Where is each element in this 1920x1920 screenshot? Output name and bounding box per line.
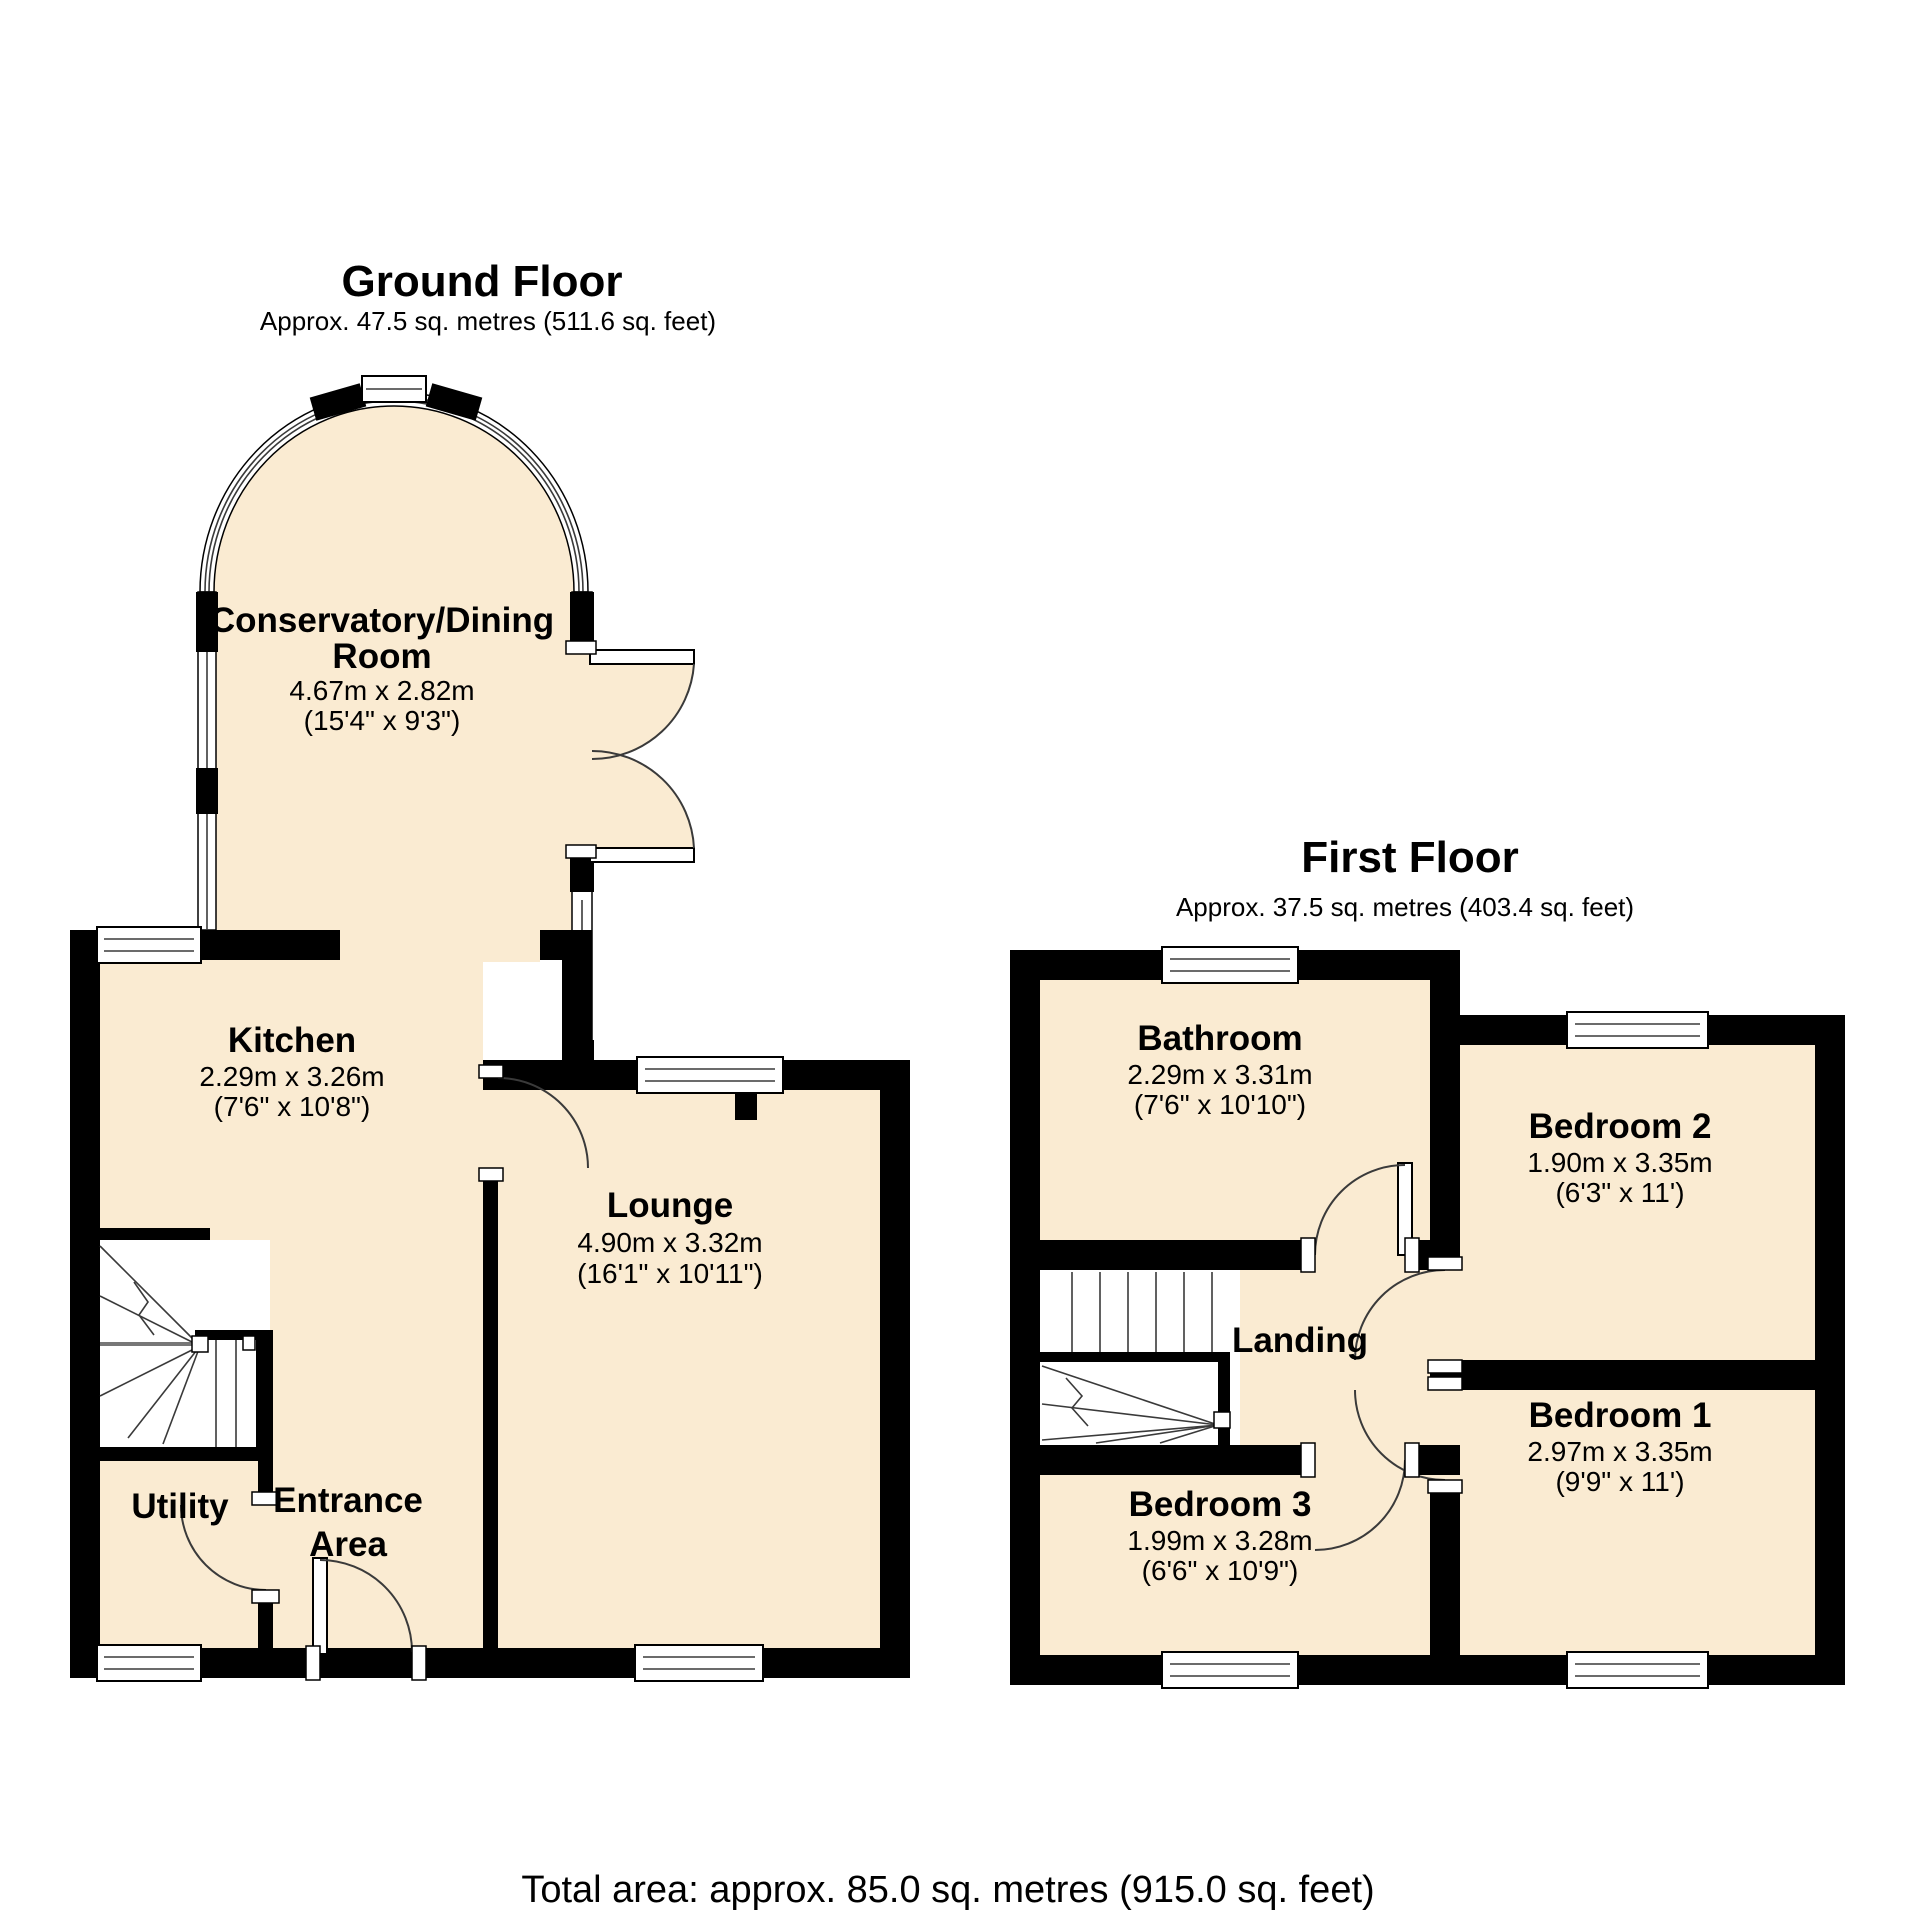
door-jamb [1428, 1360, 1462, 1373]
room-fill-lounge-door-gap [483, 1078, 498, 1168]
total-area-text: Total area: approx. 85.0 sq. metres (915… [521, 1869, 1374, 1911]
room-fill-lounge [498, 1090, 880, 1650]
ground-floor-subtitle: Approx. 47.5 sq. metres (511.6 sq. feet) [260, 306, 716, 336]
label-landing: Landing [1232, 1321, 1368, 1360]
door-jamb [566, 845, 596, 858]
label-lounge-dims-m: 4.90m x 3.32m [577, 1227, 762, 1258]
ground-stairs [100, 1240, 273, 1447]
wall-stub [540, 930, 592, 960]
wall-bedroom2-bottom [1430, 1360, 1845, 1390]
first-floor-subtitle: Approx. 37.5 sq. metres (403.4 sq. feet) [1176, 892, 1634, 922]
door-jamb [1405, 1238, 1419, 1272]
label-entrance-line1: Entrance [273, 1481, 423, 1520]
first-floor-title: First Floor [1301, 833, 1519, 882]
door-jamb [252, 1590, 279, 1603]
door-jamb [566, 641, 596, 654]
wall-landing-right [1430, 1045, 1460, 1270]
label-bedroom3-dims-ft: (6'6" x 10'9") [1142, 1555, 1299, 1586]
room-fill-bedroom3-door-gap [1315, 1445, 1405, 1475]
label-bedroom3: Bedroom 3 [1129, 1485, 1312, 1524]
window-kitchen-top [97, 927, 201, 963]
first-stairs [1040, 1270, 1240, 1445]
wall-stub [562, 960, 592, 1060]
wall-right [880, 1060, 910, 1678]
label-bathroom-dims-ft: (7'6" x 10'10") [1134, 1089, 1306, 1120]
window-bedroom1-bottom [1567, 1652, 1708, 1688]
window-lounge-top [637, 1057, 783, 1093]
window-bedroom2-top [1567, 1012, 1708, 1048]
label-bedroom1-dims-m: 2.97m x 3.35m [1527, 1436, 1712, 1467]
stair-edge-bar [1040, 1352, 1225, 1362]
label-utility: Utility [131, 1487, 229, 1526]
label-entrance-line2: Area [309, 1525, 387, 1564]
wall-kitchen-lounge [483, 1168, 498, 1648]
label-conservatory-dims-m: 4.67m x 2.82m [289, 675, 474, 706]
label-conservatory-line2: Room [332, 637, 431, 676]
wall [196, 768, 218, 814]
window-lounge-bottom [635, 1645, 763, 1681]
wall-landing-right [1430, 1480, 1460, 1685]
ground-floor-plan: Ground Floor Approx. 47.5 sq. metres (51… [70, 257, 910, 1681]
room-fill-utility-door-gap [258, 1505, 273, 1590]
label-bedroom2: Bedroom 2 [1529, 1107, 1712, 1146]
door-jamb [1428, 1257, 1462, 1270]
window-utility-bottom [97, 1645, 201, 1681]
label-conservatory-dims-ft: (15'4" x 9'3") [304, 705, 461, 736]
door-jamb [1428, 1480, 1462, 1493]
window-bedroom3-bottom [1162, 1652, 1298, 1688]
floorplan-page: Ground Floor Approx. 47.5 sq. metres (51… [0, 0, 1920, 1920]
label-bathroom: Bathroom [1137, 1019, 1302, 1058]
wall-utility-top [100, 1447, 258, 1461]
door-jamb [412, 1646, 426, 1680]
label-conservatory-line1: Conservatory/Dining [210, 601, 554, 640]
label-bedroom1: Bedroom 1 [1529, 1396, 1712, 1435]
stair-newel-cap [1214, 1412, 1230, 1428]
floorplan-drawing: Ground Floor Approx. 47.5 sq. metres (51… [0, 0, 1920, 1920]
door-jamb [1301, 1443, 1315, 1477]
label-lounge: Lounge [607, 1186, 733, 1225]
wall-left [70, 930, 100, 1678]
label-kitchen-dims-m: 2.29m x 3.26m [199, 1061, 384, 1092]
window-bathroom-top [1162, 947, 1298, 983]
ground-floor-title: Ground Floor [341, 257, 622, 306]
label-bedroom2-dims-m: 1.90m x 3.35m [1527, 1147, 1712, 1178]
label-bathroom-dims-m: 2.29m x 3.31m [1127, 1059, 1312, 1090]
stair-edge-bar [1218, 1352, 1230, 1445]
label-bedroom2-dims-ft: (6'3" x 11') [1555, 1177, 1684, 1208]
wall-bathroom-bottom [1040, 1240, 1315, 1270]
first-floor-plan: First Floor Approx. 37.5 sq. metres (403… [1010, 833, 1845, 1688]
label-kitchen: Kitchen [228, 1021, 356, 1060]
door-leaf-front [313, 1558, 327, 1654]
door-jamb [1405, 1443, 1419, 1477]
stair-newel-cap [192, 1336, 208, 1352]
label-lounge-dims-ft: (16'1" x 10'11") [577, 1258, 763, 1289]
french-door-opening [569, 654, 595, 846]
door-leaf [590, 650, 694, 664]
stair-edge-bar [256, 1330, 273, 1447]
door-jamb [1301, 1238, 1315, 1272]
room-fill-french-door-upper [592, 657, 694, 759]
door-jamb [1428, 1377, 1462, 1390]
room-fill-bathroom-door-gap [1315, 1240, 1405, 1270]
label-bedroom1-dims-ft: (9'9" x 11') [1555, 1466, 1684, 1497]
stair-newel-cap [243, 1336, 255, 1350]
wall-right [1815, 1015, 1845, 1685]
room-fill-french-door-lower [592, 751, 694, 853]
wall-stair-stub [100, 1228, 210, 1240]
wall-bedroom3-top [1040, 1445, 1315, 1475]
label-bedroom3-dims-m: 1.99m x 3.28m [1127, 1525, 1312, 1556]
wall-bottom [1010, 1655, 1845, 1685]
door-jamb [479, 1168, 503, 1181]
door-jamb [479, 1065, 503, 1078]
room-fill-conservatory-opening [340, 928, 540, 962]
door-leaf [590, 848, 694, 862]
door-jamb [306, 1646, 320, 1680]
room-fill-bedroom2-door-gap [1430, 1270, 1460, 1360]
label-kitchen-dims-ft: (7'6" x 10'8") [214, 1091, 371, 1122]
wall-left [1010, 950, 1040, 1685]
wall-chimney-stub [735, 1090, 757, 1120]
